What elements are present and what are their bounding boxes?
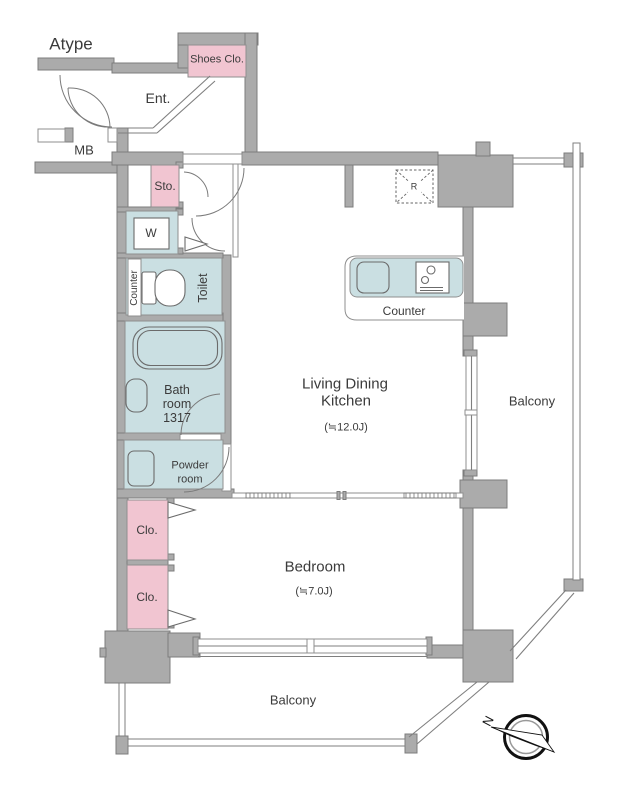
bathroom-label-line1: Bath (164, 384, 190, 397)
entrance-door-leaf (68, 88, 110, 127)
plan-type-label: Atype (49, 36, 92, 53)
compass (491, 716, 554, 759)
storage-door-swing (184, 172, 208, 197)
toilet-counter-label: Counter (130, 270, 140, 306)
railing-top (513, 158, 564, 164)
closet-upper-label: Clo. (136, 524, 157, 536)
railing-bottom (128, 739, 405, 746)
meter-box-panel (38, 129, 65, 142)
toilet-label: Toilet (197, 273, 210, 302)
bedroom-size-label: (≒7.0J) (295, 587, 332, 598)
kitchen-counter-label: Counter (383, 305, 426, 317)
closet-lower-label: Clo. (136, 591, 157, 603)
balcony-bottom-label: Balcony (270, 694, 316, 707)
shoes-closet-label: Shoes Clo. (190, 55, 244, 66)
railing-right (573, 143, 580, 580)
stove (416, 262, 449, 293)
entrance-door-swing (60, 75, 112, 127)
refrigerator-label: R (411, 183, 418, 192)
storage-label: Sto. (154, 180, 175, 192)
railing-left-connector (119, 683, 125, 736)
floor-plan: Atype Shoes Clo. Ent. MB Sto. W Counter … (0, 0, 621, 800)
closet-lower-folding-door (168, 610, 195, 627)
bedroom-label: Bedroom (285, 560, 346, 575)
ldk-label-line2: Kitchen (321, 394, 371, 409)
washer-label: W (145, 227, 156, 239)
meter-box-label: MB (74, 144, 94, 157)
entrance-label: Ent. (146, 91, 171, 105)
ldk-size-label: (≒12.0J) (324, 423, 367, 434)
powder-room-label-line2: room (177, 475, 202, 486)
ldk-label-line1: Living Dining (302, 377, 388, 392)
washer-folding-door (185, 237, 207, 251)
bathroom-label-line2: room (163, 398, 191, 411)
closet-upper-folding-door (168, 502, 195, 518)
balcony-right-label: Balcony (509, 395, 555, 408)
bathroom-label-line3: 1317 (163, 412, 191, 425)
toilet-fixture (142, 270, 185, 306)
powder-room-label-line1: Powder (171, 461, 208, 472)
